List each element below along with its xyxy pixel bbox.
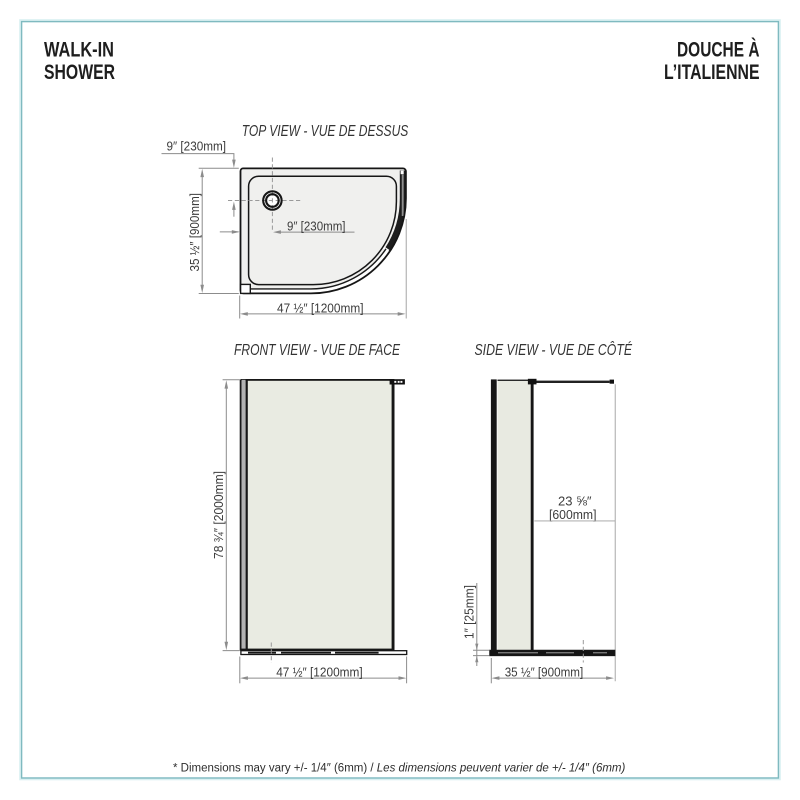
svg-text:9″ [230mm]: 9″ [230mm] [287,219,346,234]
svg-text:35 ½″ [900mm]: 35 ½″ [900mm] [187,193,202,272]
svg-text:FRONT VIEW - VUE DE FACE: FRONT VIEW - VUE DE FACE [234,342,400,359]
svg-text:[600mm]: [600mm] [549,507,597,522]
svg-text:78 ¾″ [2000mm]: 78 ¾″ [2000mm] [211,471,226,559]
svg-text:SHOWER: SHOWER [44,61,115,84]
svg-text:TOP VIEW - VUE DE DESSUS: TOP VIEW - VUE DE DESSUS [242,123,409,140]
svg-text:L’ITALIENNE: L’ITALIENNE [664,61,760,84]
svg-text:SIDE VIEW - VUE DE CÔTÉ: SIDE VIEW - VUE DE CÔTÉ [475,340,633,359]
svg-text:1″ [25mm]: 1″ [25mm] [461,585,476,639]
svg-text:47 ½″ [1200mm]: 47 ½″ [1200mm] [276,664,363,679]
svg-text:DOUCHE À: DOUCHE À [677,39,760,62]
svg-text:35 ½″ [900mm]: 35 ½″ [900mm] [505,664,584,679]
svg-text:47 ½″ [1200mm]: 47 ½″ [1200mm] [277,300,364,315]
svg-text:WALK-IN: WALK-IN [44,39,114,62]
svg-text:* Dimensions may vary +/- 1/4″: * Dimensions may vary +/- 1/4″ (6mm) / L… [173,763,626,775]
svg-text:9″ [230mm]: 9″ [230mm] [167,139,227,154]
